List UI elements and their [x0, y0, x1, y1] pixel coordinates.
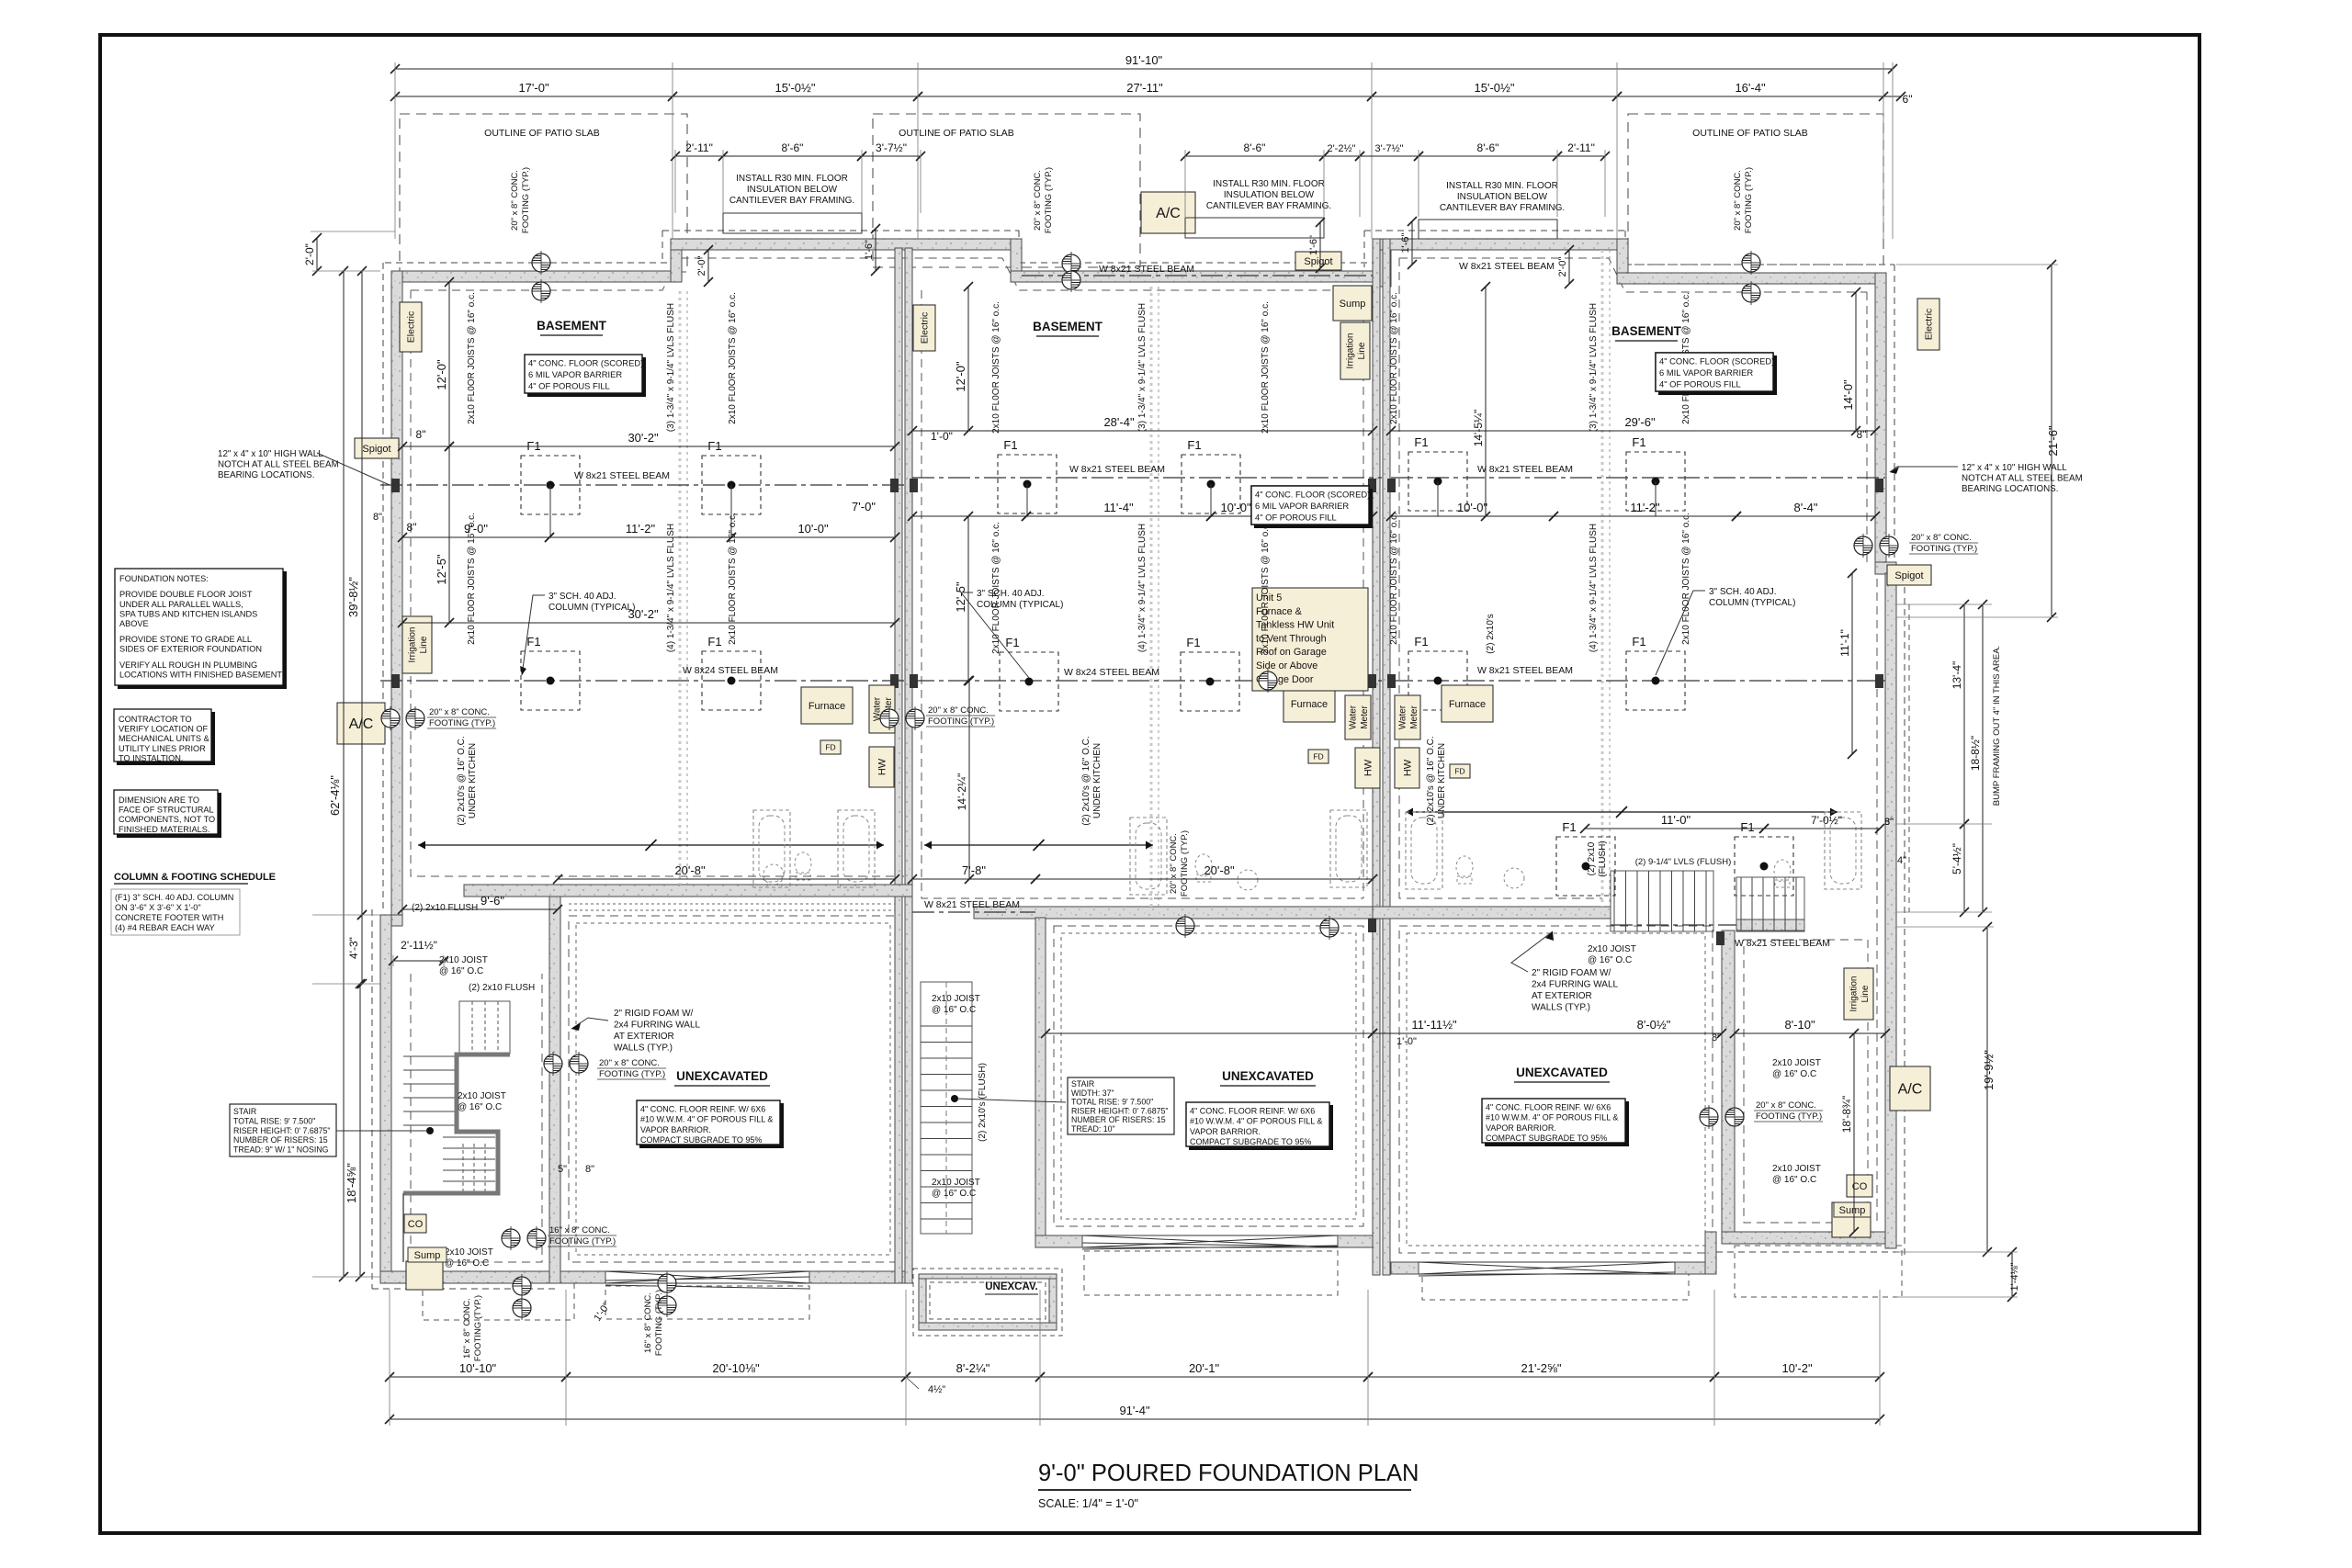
svg-text:SCALE: 1/4" = 1'-0": SCALE: 1/4" = 1'-0"	[1038, 1497, 1138, 1510]
svg-text:F1: F1	[1005, 636, 1019, 649]
svg-text:8'-0½": 8'-0½"	[1637, 1018, 1671, 1032]
svg-text:6 MIL VAPOR BARRIER: 6 MIL VAPOR BARRIER	[528, 369, 622, 379]
svg-text:18'-8¾": 18'-8¾"	[1840, 1096, 1853, 1134]
svg-text:OUTLINE OF PATIO SLAB: OUTLINE OF PATIO SLAB	[484, 128, 600, 139]
svg-text:(2) 2x10's: (2) 2x10's	[1486, 614, 1496, 654]
svg-text:INSTALL R30 MIN. FLOORINSULATI: INSTALL R30 MIN. FLOORINSULATION BELOWCA…	[1440, 181, 1565, 213]
svg-text:30'-2": 30'-2"	[628, 431, 659, 445]
svg-text:21'-6": 21'-6"	[2046, 425, 2060, 457]
svg-text:10'-10": 10'-10"	[459, 1361, 497, 1375]
svg-text:12'-0": 12'-0"	[954, 361, 967, 392]
svg-text:Electric: Electric	[920, 312, 931, 344]
svg-text:4" CONC. FLOOR (SCORED): 4" CONC. FLOOR (SCORED)	[1659, 356, 1774, 367]
svg-text:8": 8"	[1884, 817, 1894, 828]
svg-text:20" x 8" CONC.: 20" x 8" CONC.	[928, 705, 989, 716]
svg-text:Sump: Sump	[1839, 1205, 1866, 1216]
svg-text:Sump: Sump	[1340, 299, 1366, 310]
svg-text:FOOTING (TYP.): FOOTING (TYP.)	[549, 1236, 616, 1247]
svg-text:W 8x21 STEEL BEAM: W 8x21 STEEL BEAM	[1477, 464, 1573, 475]
svg-text:(4) 1-3/4" x 9-1/4" LVLS FLUSH: (4) 1-3/4" x 9-1/4" LVLS FLUSH	[1137, 524, 1148, 652]
svg-text:HW: HW	[876, 758, 888, 775]
svg-text:MECHANICAL UNITS &: MECHANICAL UNITS &	[119, 734, 209, 743]
svg-text:8'-10": 8'-10"	[1784, 1018, 1815, 1032]
svg-text:20" x 8" CONC.: 20" x 8" CONC.	[1911, 533, 1972, 543]
svg-text:OUTLINE OF PATIO SLAB: OUTLINE OF PATIO SLAB	[1692, 128, 1808, 139]
svg-text:DIMENSION ARE TO: DIMENSION ARE TO	[119, 795, 199, 805]
svg-text:13'-4": 13'-4"	[1951, 661, 1963, 690]
svg-text:Line: Line	[419, 636, 429, 653]
svg-text:20'-8": 20'-8"	[1204, 863, 1235, 877]
svg-text:F1: F1	[707, 635, 721, 649]
svg-text:Sump: Sump	[414, 1250, 441, 1261]
svg-text:8": 8"	[1712, 1032, 1721, 1043]
svg-text:UNEXCAVATED: UNEXCAVATED	[676, 1069, 768, 1083]
svg-text:(3) 1-3/4" x 9-1/4" LVLS FLUSH: (3) 1-3/4" x 9-1/4" LVLS FLUSH	[1589, 303, 1599, 432]
svg-text:F1: F1	[1003, 438, 1017, 452]
svg-text:F1: F1	[526, 635, 540, 649]
svg-text:2x10 FL0OR JOISTS @ 16" o.c.: 2x10 FL0OR JOISTS @ 16" o.c.	[1389, 292, 1399, 424]
svg-text:FD: FD	[825, 742, 835, 751]
svg-text:20'-10⅛": 20'-10⅛"	[712, 1361, 760, 1375]
svg-text:4½": 4½"	[928, 1384, 945, 1395]
svg-text:FD: FD	[1454, 766, 1464, 775]
svg-text:2x10 FL0OR JOISTS @ 16" o.c.: 2x10 FL0OR JOISTS @ 16" o.c.	[1681, 513, 1691, 645]
svg-text:4" CONC. FLOOR REINF. W/ 6X6: 4" CONC. FLOOR REINF. W/ 6X6	[1190, 1107, 1315, 1116]
svg-text:FOUNDATION NOTES:: FOUNDATION NOTES:	[119, 574, 209, 583]
svg-text:11'-11½": 11'-11½"	[1411, 1018, 1457, 1032]
svg-text:20" x 8" CONC.: 20" x 8" CONC.	[1733, 170, 1743, 231]
svg-text:30'-2": 30'-2"	[628, 607, 659, 621]
svg-text:PROVIDE DOUBLE FLOOR JOIST: PROVIDE DOUBLE FLOOR JOIST	[119, 590, 253, 599]
svg-text:Spigot: Spigot	[1304, 256, 1332, 267]
svg-text:(2) 2x10: (2) 2x10	[1587, 841, 1597, 875]
svg-text:14'-5¼": 14'-5¼"	[1472, 410, 1485, 447]
svg-text:4": 4"	[1897, 855, 1906, 866]
svg-text:8'-6": 8'-6"	[1477, 141, 1499, 154]
svg-text:CONTRACTOR TO: CONTRACTOR TO	[119, 715, 192, 724]
svg-text:UNDER KITCHEN: UNDER KITCHEN	[1437, 743, 1447, 818]
svg-text:COMPACT SUBGRADE TO 95%: COMPACT SUBGRADE TO 95%	[1190, 1137, 1311, 1146]
svg-text:20" x 8" CONC.: 20" x 8" CONC.	[429, 707, 490, 717]
svg-text:2x10 FL0OR JOISTS @ 16" o.c.: 2x10 FL0OR JOISTS @ 16" o.c.	[728, 292, 738, 424]
svg-text:COLUMN & FOOTING SCHEDULE: COLUMN & FOOTING SCHEDULE	[114, 872, 276, 883]
svg-text:(2) 2x10 FLUSH: (2) 2x10 FLUSH	[412, 903, 478, 913]
svg-text:W 8x21 STEEL BEAM: W 8x21 STEEL BEAM	[574, 470, 670, 481]
svg-text:A/C: A/C	[349, 716, 374, 732]
svg-text:16'-4": 16'-4"	[1735, 81, 1766, 95]
svg-text:2x10 JOIST@ 16" O.C: 2x10 JOIST@ 16" O.C	[1772, 1058, 1821, 1079]
svg-text:15'-0½": 15'-0½"	[1475, 81, 1515, 95]
svg-text:28'-4": 28'-4"	[1103, 415, 1135, 429]
svg-text:Meter: Meter	[1409, 705, 1419, 729]
svg-text:Spigot: Spigot	[1894, 570, 1923, 581]
svg-text:9'-6": 9'-6"	[481, 894, 504, 908]
svg-text:3'-7½": 3'-7½"	[1374, 143, 1403, 154]
svg-text:W 8x21 STEEL BEAM: W 8x21 STEEL BEAM	[1459, 261, 1555, 272]
svg-text:14'-2¼": 14'-2¼"	[955, 773, 968, 811]
svg-text:7'-0½": 7'-0½"	[1811, 814, 1842, 827]
svg-text:F1: F1	[1632, 635, 1645, 649]
svg-text:8'-6": 8'-6"	[1244, 141, 1266, 154]
svg-text:TO INSTALTION.: TO INSTALTION.	[119, 753, 183, 762]
svg-text:20'-8": 20'-8"	[674, 863, 706, 877]
svg-text:4" OF POROUS FILL: 4" OF POROUS FILL	[1659, 379, 1741, 389]
svg-text:Furnace: Furnace	[1449, 699, 1486, 710]
svg-text:FOOTING (TYP.): FOOTING (TYP.)	[1044, 167, 1054, 233]
svg-text:91'-10": 91'-10"	[1125, 53, 1163, 67]
svg-text:6 MIL VAPOR BARRIER: 6 MIL VAPOR BARRIER	[1659, 367, 1753, 378]
svg-text:15'-0½": 15'-0½"	[775, 81, 816, 95]
svg-text:29'-6": 29'-6"	[1624, 415, 1656, 429]
svg-text:4" CONC. FLOOR REINF. W/ 6X6: 4" CONC. FLOOR REINF. W/ 6X6	[640, 1105, 765, 1114]
svg-text:2'-11": 2'-11"	[1567, 141, 1595, 154]
svg-text:21'-2⅝": 21'-2⅝"	[1521, 1361, 1562, 1375]
svg-text:8": 8"	[407, 521, 417, 534]
svg-text:20" x 8" CONC.: 20" x 8" CONC.	[599, 1058, 660, 1068]
svg-text:Spigot: Spigot	[362, 444, 390, 455]
svg-text:W 8x21 STEEL BEAM: W 8x21 STEEL BEAM	[1069, 464, 1165, 475]
svg-text:UNDER KITCHEN: UNDER KITCHEN	[1092, 743, 1102, 818]
svg-text:FOOTING (TYP.): FOOTING (TYP.)	[429, 718, 495, 728]
svg-text:BASEMENT: BASEMENT	[1611, 324, 1682, 338]
svg-text:4" OF POROUS FILL: 4" OF POROUS FILL	[528, 381, 610, 391]
svg-text:VERIFY LOCATION OF: VERIFY LOCATION OF	[119, 725, 209, 734]
svg-text:BASEMENT: BASEMENT	[537, 319, 607, 333]
svg-text:FOOTING (TYP.): FOOTING (TYP.)	[521, 167, 531, 233]
svg-text:FOOTING (TYP.): FOOTING (TYP.)	[1744, 167, 1754, 233]
svg-text:1'-4⅛": 1'-4⅛"	[2009, 1262, 2020, 1291]
svg-text:2x10 JOIST@ 16" O.C: 2x10 JOIST@ 16" O.C	[458, 1091, 506, 1112]
svg-text:8": 8"	[1857, 428, 1867, 441]
svg-text:FOOTING (TYP.): FOOTING (TYP.)	[1911, 544, 1977, 554]
svg-text:COMPACT SUBGRADE TO 95%: COMPACT SUBGRADE TO 95%	[1486, 1134, 1607, 1143]
svg-text:F1: F1	[1740, 820, 1754, 834]
svg-text:BUMP FRAMING OUT 4" IN THIS AR: BUMP FRAMING OUT 4" IN THIS AREA.	[1992, 646, 2002, 806]
svg-text:Irrigation: Irrigation	[1849, 976, 1859, 1012]
svg-text:16" x 8" CONC.: 16" x 8" CONC.	[462, 1298, 472, 1359]
svg-text:2'-0": 2'-0"	[1557, 256, 1568, 276]
svg-text:Electric: Electric	[406, 311, 417, 343]
svg-text:27'-11": 27'-11"	[1126, 81, 1163, 95]
svg-text:F1: F1	[1414, 635, 1428, 649]
svg-text:1'-0": 1'-0"	[931, 430, 953, 443]
svg-text:9'-0" POURED FOUNDATION PLAN: 9'-0" POURED FOUNDATION PLAN	[1038, 1461, 1419, 1486]
svg-text:#10 W.W.M. 4" OF POROUS FILL &: #10 W.W.M. 4" OF POROUS FILL &	[640, 1115, 773, 1124]
svg-text:12'-0": 12'-0"	[435, 359, 448, 390]
svg-text:11'-4": 11'-4"	[1103, 501, 1134, 514]
svg-text:1'-6": 1'-6"	[1400, 232, 1411, 253]
svg-text:10'-0": 10'-0"	[1457, 501, 1488, 514]
svg-text:20" x 8" CONC.: 20" x 8" CONC.	[1169, 833, 1179, 894]
svg-text:5'-4½": 5'-4½"	[1951, 843, 1963, 874]
svg-text:2x10 JOIST@ 16" O.C: 2x10 JOIST@ 16" O.C	[932, 994, 980, 1015]
svg-text:ABOVE: ABOVE	[119, 619, 149, 628]
svg-text:F1: F1	[1562, 820, 1576, 834]
svg-text:UTILITY LINES PRIOR: UTILITY LINES PRIOR	[119, 744, 206, 753]
svg-text:2'-0": 2'-0"	[303, 243, 316, 265]
svg-text:(3) 1-3/4" x 9-1/4" LVLS FLUSH: (3) 1-3/4" x 9-1/4" LVLS FLUSH	[666, 303, 676, 432]
svg-text:HW: HW	[1402, 759, 1413, 776]
svg-text:W 8x21 STEEL BEAM: W 8x21 STEEL BEAM	[1477, 665, 1573, 676]
svg-text:8'-2¼": 8'-2¼"	[956, 1361, 990, 1375]
svg-text:#10 W.W.M. 4" OF POROUS FILL &: #10 W.W.M. 4" OF POROUS FILL &	[1190, 1117, 1322, 1126]
svg-text:4" OF POROUS FILL: 4" OF POROUS FILL	[1255, 513, 1337, 523]
svg-text:INSTALL R30 MIN. FLOORINSULATI: INSTALL R30 MIN. FLOORINSULATION BELOWCA…	[1206, 179, 1331, 211]
svg-text:2x10 FL0OR JOISTS @ 16" o.c.: 2x10 FL0OR JOISTS @ 16" o.c.	[991, 522, 1001, 654]
svg-text:18-8½": 18-8½"	[1969, 736, 1982, 771]
svg-text:INSTALL R30 MIN. FLOORINSULATI: INSTALL R30 MIN. FLOORINSULATION BELOWCA…	[729, 174, 854, 206]
svg-text:FACE OF STRUCTURAL: FACE OF STRUCTURAL	[119, 806, 214, 815]
svg-text:16" x 8" CONC.: 16" x 8" CONC.	[643, 1292, 653, 1353]
svg-text:11'-2": 11'-2"	[626, 522, 656, 536]
svg-text:20" x 8" CONC.: 20" x 8" CONC.	[1756, 1100, 1816, 1111]
svg-text:8'-6": 8'-6"	[782, 141, 804, 154]
svg-text:19'-9½": 19'-9½"	[1982, 1050, 1996, 1090]
svg-text:COMPACT SUBGRADE TO 95%: COMPACT SUBGRADE TO 95%	[640, 1135, 762, 1145]
svg-text:2x10 FL0OR JOISTS @ 16" o.c.: 2x10 FL0OR JOISTS @ 16" o.c.	[1261, 522, 1271, 654]
svg-text:2x10 FL0OR JOISTS @ 16" o.c.: 2x10 FL0OR JOISTS @ 16" o.c.	[467, 292, 477, 424]
svg-text:10'-2": 10'-2"	[1781, 1361, 1813, 1375]
svg-text:16" x 8" CONC.: 16" x 8" CONC.	[549, 1225, 610, 1235]
svg-text:W 8x21 STEEL BEAM: W 8x21 STEEL BEAM	[1735, 938, 1830, 949]
svg-text:SIDES OF EXTERIOR FOUNDATION: SIDES OF EXTERIOR FOUNDATION	[119, 645, 262, 654]
svg-text:F1: F1	[1414, 435, 1428, 449]
svg-text:(4) 1-3/4" x 9-1/4" LVLS FLUSH: (4) 1-3/4" x 9-1/4" LVLS FLUSH	[1589, 524, 1599, 652]
svg-text:2x10 JOIST@ 16" O.C: 2x10 JOIST@ 16" O.C	[932, 1178, 980, 1199]
svg-text:FOOTING (TYP.): FOOTING (TYP.)	[473, 1295, 483, 1361]
svg-text:VERIFY ALL ROUGH IN PLUMBING: VERIFY ALL ROUGH IN PLUMBING	[119, 660, 257, 670]
svg-text:10'-0": 10'-0"	[797, 522, 829, 536]
svg-text:2x10 FL0OR JOISTS @ 16" o.c.: 2x10 FL0OR JOISTS @ 16" o.c.	[1389, 513, 1399, 645]
svg-text:1'-6": 1'-6"	[864, 240, 875, 260]
svg-text:12'-5": 12'-5"	[435, 554, 448, 585]
svg-text:4" CONC. FLOOR (SCORED): 4" CONC. FLOOR (SCORED)	[528, 358, 643, 368]
svg-text:1'-6": 1'-6"	[1308, 235, 1319, 255]
svg-text:Line: Line	[1860, 985, 1871, 1002]
svg-text:(2) 2x10's @ 16" O.C.: (2) 2x10's @ 16" O.C.	[1081, 736, 1091, 825]
svg-text:A/C: A/C	[1156, 206, 1181, 221]
svg-text:W 8x24 STEEL BEAM: W 8x24 STEEL BEAM	[683, 665, 778, 676]
svg-text:3'-7½": 3'-7½"	[876, 141, 907, 154]
svg-text:8'-4": 8'-4"	[1794, 501, 1818, 514]
svg-text:FOOTING (TYP.): FOOTING (TYP.)	[654, 1290, 664, 1356]
svg-text:2x10 JOIST@ 16" O.C: 2x10 JOIST@ 16" O.C	[1772, 1164, 1821, 1185]
svg-text:BASEMENT: BASEMENT	[1033, 320, 1103, 333]
svg-text:Irrigation: Irrigation	[407, 627, 417, 663]
svg-text:(2) 2x10's @ 16" O.C.: (2) 2x10's @ 16" O.C.	[457, 736, 467, 825]
svg-text:Furnace: Furnace	[1291, 699, 1328, 710]
svg-text:LOCATIONS WITH FINISHED BASEME: LOCATIONS WITH FINISHED BASEMENT	[119, 671, 282, 680]
svg-text:PROVIDE STONE TO GRADE ALL: PROVIDE STONE TO GRADE ALL	[119, 635, 252, 644]
svg-text:11'-0": 11'-0"	[1661, 813, 1691, 827]
svg-text:11'-2": 11'-2"	[1630, 501, 1660, 514]
svg-text:Meter: Meter	[1360, 705, 1370, 729]
svg-text:10'-0": 10'-0"	[1220, 501, 1251, 514]
svg-text:(4) 1-3/4" x 9-1/4" LVLS FLUSH: (4) 1-3/4" x 9-1/4" LVLS FLUSH	[666, 524, 676, 652]
svg-text:(2) 2x10 FLUSH: (2) 2x10 FLUSH	[469, 983, 535, 993]
svg-text:4" CONC. FLOOR (SCORED): 4" CONC. FLOOR (SCORED)	[1255, 490, 1370, 500]
svg-text:5": 5"	[558, 1164, 567, 1175]
svg-text:A/C: A/C	[1898, 1082, 1923, 1098]
svg-text:7'-0": 7'-0"	[852, 500, 876, 513]
svg-text:20" x 8" CONC.: 20" x 8" CONC.	[510, 170, 520, 231]
svg-text:SPA TUBS AND KITCHEN ISLANDS: SPA TUBS AND KITCHEN ISLANDS	[119, 609, 257, 618]
svg-text:F1: F1	[1632, 435, 1645, 449]
svg-text:4" CONC. FLOOR REINF. W/ 6X6: 4" CONC. FLOOR REINF. W/ 6X6	[1486, 1103, 1611, 1112]
svg-text:6": 6"	[1903, 93, 1913, 106]
svg-text:20'-1": 20'-1"	[1189, 1361, 1220, 1375]
svg-text:FOOTING (TYP.): FOOTING (TYP.)	[928, 716, 994, 727]
svg-text:4'-3": 4'-3"	[347, 937, 360, 959]
svg-text:OUTLINE OF PATIO SLAB: OUTLINE OF PATIO SLAB	[899, 128, 1014, 139]
svg-text:VAPOR BARRIOR.: VAPOR BARRIOR.	[640, 1125, 711, 1134]
svg-text:VAPOR BARRIOR.: VAPOR BARRIOR.	[1486, 1123, 1556, 1133]
svg-text:2x10 JOIST@ 16" O.C: 2x10 JOIST@ 16" O.C	[445, 1247, 493, 1269]
svg-text:1'-0": 1'-0"	[1396, 1036, 1417, 1047]
svg-text:Irrigation: Irrigation	[1345, 333, 1355, 369]
svg-text:COMPONENTS, NOT TO: COMPONENTS, NOT TO	[119, 815, 215, 824]
svg-text:FOOTING (TYP.): FOOTING (TYP.)	[599, 1069, 665, 1079]
svg-text:W 8x24 STEEL BEAM: W 8x24 STEEL BEAM	[1064, 667, 1159, 678]
svg-text:FINISHED MATERIALS.: FINISHED MATERIALS.	[119, 825, 209, 834]
svg-text:Water: Water	[1348, 705, 1358, 729]
svg-text:FD: FD	[1313, 751, 1323, 761]
svg-text:VAPOR BARRIOR.: VAPOR BARRIOR.	[1190, 1127, 1261, 1136]
svg-text:9'-0": 9'-0"	[464, 522, 488, 536]
svg-text:8": 8"	[416, 428, 426, 441]
svg-text:UNDER ALL PARALLEL WALLS,: UNDER ALL PARALLEL WALLS,	[119, 600, 243, 609]
svg-text:UNEXCAVATED: UNEXCAVATED	[1516, 1066, 1608, 1079]
svg-text:FOOTING (TYP.): FOOTING (TYP.)	[1756, 1111, 1822, 1122]
svg-text:12'-5": 12'-5"	[954, 581, 967, 613]
svg-text:UNEXCAVATED: UNEXCAVATED	[1222, 1069, 1314, 1083]
svg-text:17'-0": 17'-0"	[518, 81, 549, 95]
svg-text:2'-11½": 2'-11½"	[401, 939, 437, 952]
svg-text:#10 W.W.M. 4" OF POROUS FILL &: #10 W.W.M. 4" OF POROUS FILL &	[1486, 1113, 1618, 1122]
svg-text:(3) 1-3/4" x 9-1/4" LVLS FLUSH: (3) 1-3/4" x 9-1/4" LVLS FLUSH	[1137, 303, 1148, 432]
svg-text:39'-8½": 39'-8½"	[346, 577, 360, 617]
svg-text:HW: HW	[1363, 759, 1374, 776]
svg-text:(2) 2x10's (FLUSH): (2) 2x10's (FLUSH)	[978, 1063, 988, 1142]
svg-text:2x10 FL0OR JOISTS @ 16" o.c.: 2x10 FL0OR JOISTS @ 16" o.c.	[1261, 301, 1271, 434]
svg-text:2x10 FL0OR JOISTS @ 16" o.c.: 2x10 FL0OR JOISTS @ 16" o.c.	[991, 301, 1001, 434]
svg-text:Water: Water	[1397, 705, 1408, 729]
svg-text:CO: CO	[408, 1219, 424, 1230]
svg-text:F1: F1	[1187, 438, 1201, 452]
svg-text:14'-0": 14'-0"	[1841, 379, 1855, 411]
svg-text:F1: F1	[1186, 636, 1200, 649]
svg-text:UNDER KITCHEN: UNDER KITCHEN	[468, 743, 478, 818]
svg-text:2'-2½": 2'-2½"	[1327, 143, 1355, 154]
svg-text:(FLUSH): (FLUSH)	[1598, 840, 1608, 876]
svg-text:6 MIL VAPOR BARRIER: 6 MIL VAPOR BARRIER	[1255, 501, 1349, 511]
svg-text:Line: Line	[1357, 342, 1367, 359]
svg-text:W 8x21 STEEL BEAM: W 8x21 STEEL BEAM	[924, 899, 1020, 910]
svg-text:2x10 FL0OR JOISTS @ 16" o.c.: 2x10 FL0OR JOISTS @ 16" o.c.	[728, 513, 738, 645]
svg-text:UNEXCAV.: UNEXCAV.	[985, 1281, 1038, 1292]
svg-text:11'-1": 11'-1"	[1838, 629, 1851, 657]
svg-text:18'-4⅝": 18'-4⅝"	[345, 1163, 358, 1203]
svg-text:91'-4": 91'-4"	[1119, 1404, 1150, 1417]
svg-text:W 8x21 STEEL BEAM: W 8x21 STEEL BEAM	[1099, 264, 1194, 275]
svg-text:Furnace: Furnace	[808, 701, 845, 712]
svg-text:2'-11": 2'-11"	[685, 141, 713, 154]
svg-text:20" x 8" CONC.: 20" x 8" CONC.	[1033, 170, 1043, 231]
svg-text:8": 8"	[585, 1164, 594, 1175]
svg-text:FOOTING (TYP.): FOOTING (TYP.)	[1180, 830, 1190, 897]
svg-text:62'-4⅛": 62'-4⅛"	[328, 775, 342, 816]
svg-text:2x10 JOIST@ 16" O.C: 2x10 JOIST@ 16" O.C	[1588, 944, 1636, 965]
svg-text:2'-0": 2'-0"	[696, 255, 707, 276]
svg-text:(2) 9-1/4" LVLS (FLUSH): (2) 9-1/4" LVLS (FLUSH)	[1635, 857, 1732, 867]
svg-text:Electric: Electric	[1924, 309, 1935, 340]
svg-text:8": 8"	[373, 512, 382, 523]
